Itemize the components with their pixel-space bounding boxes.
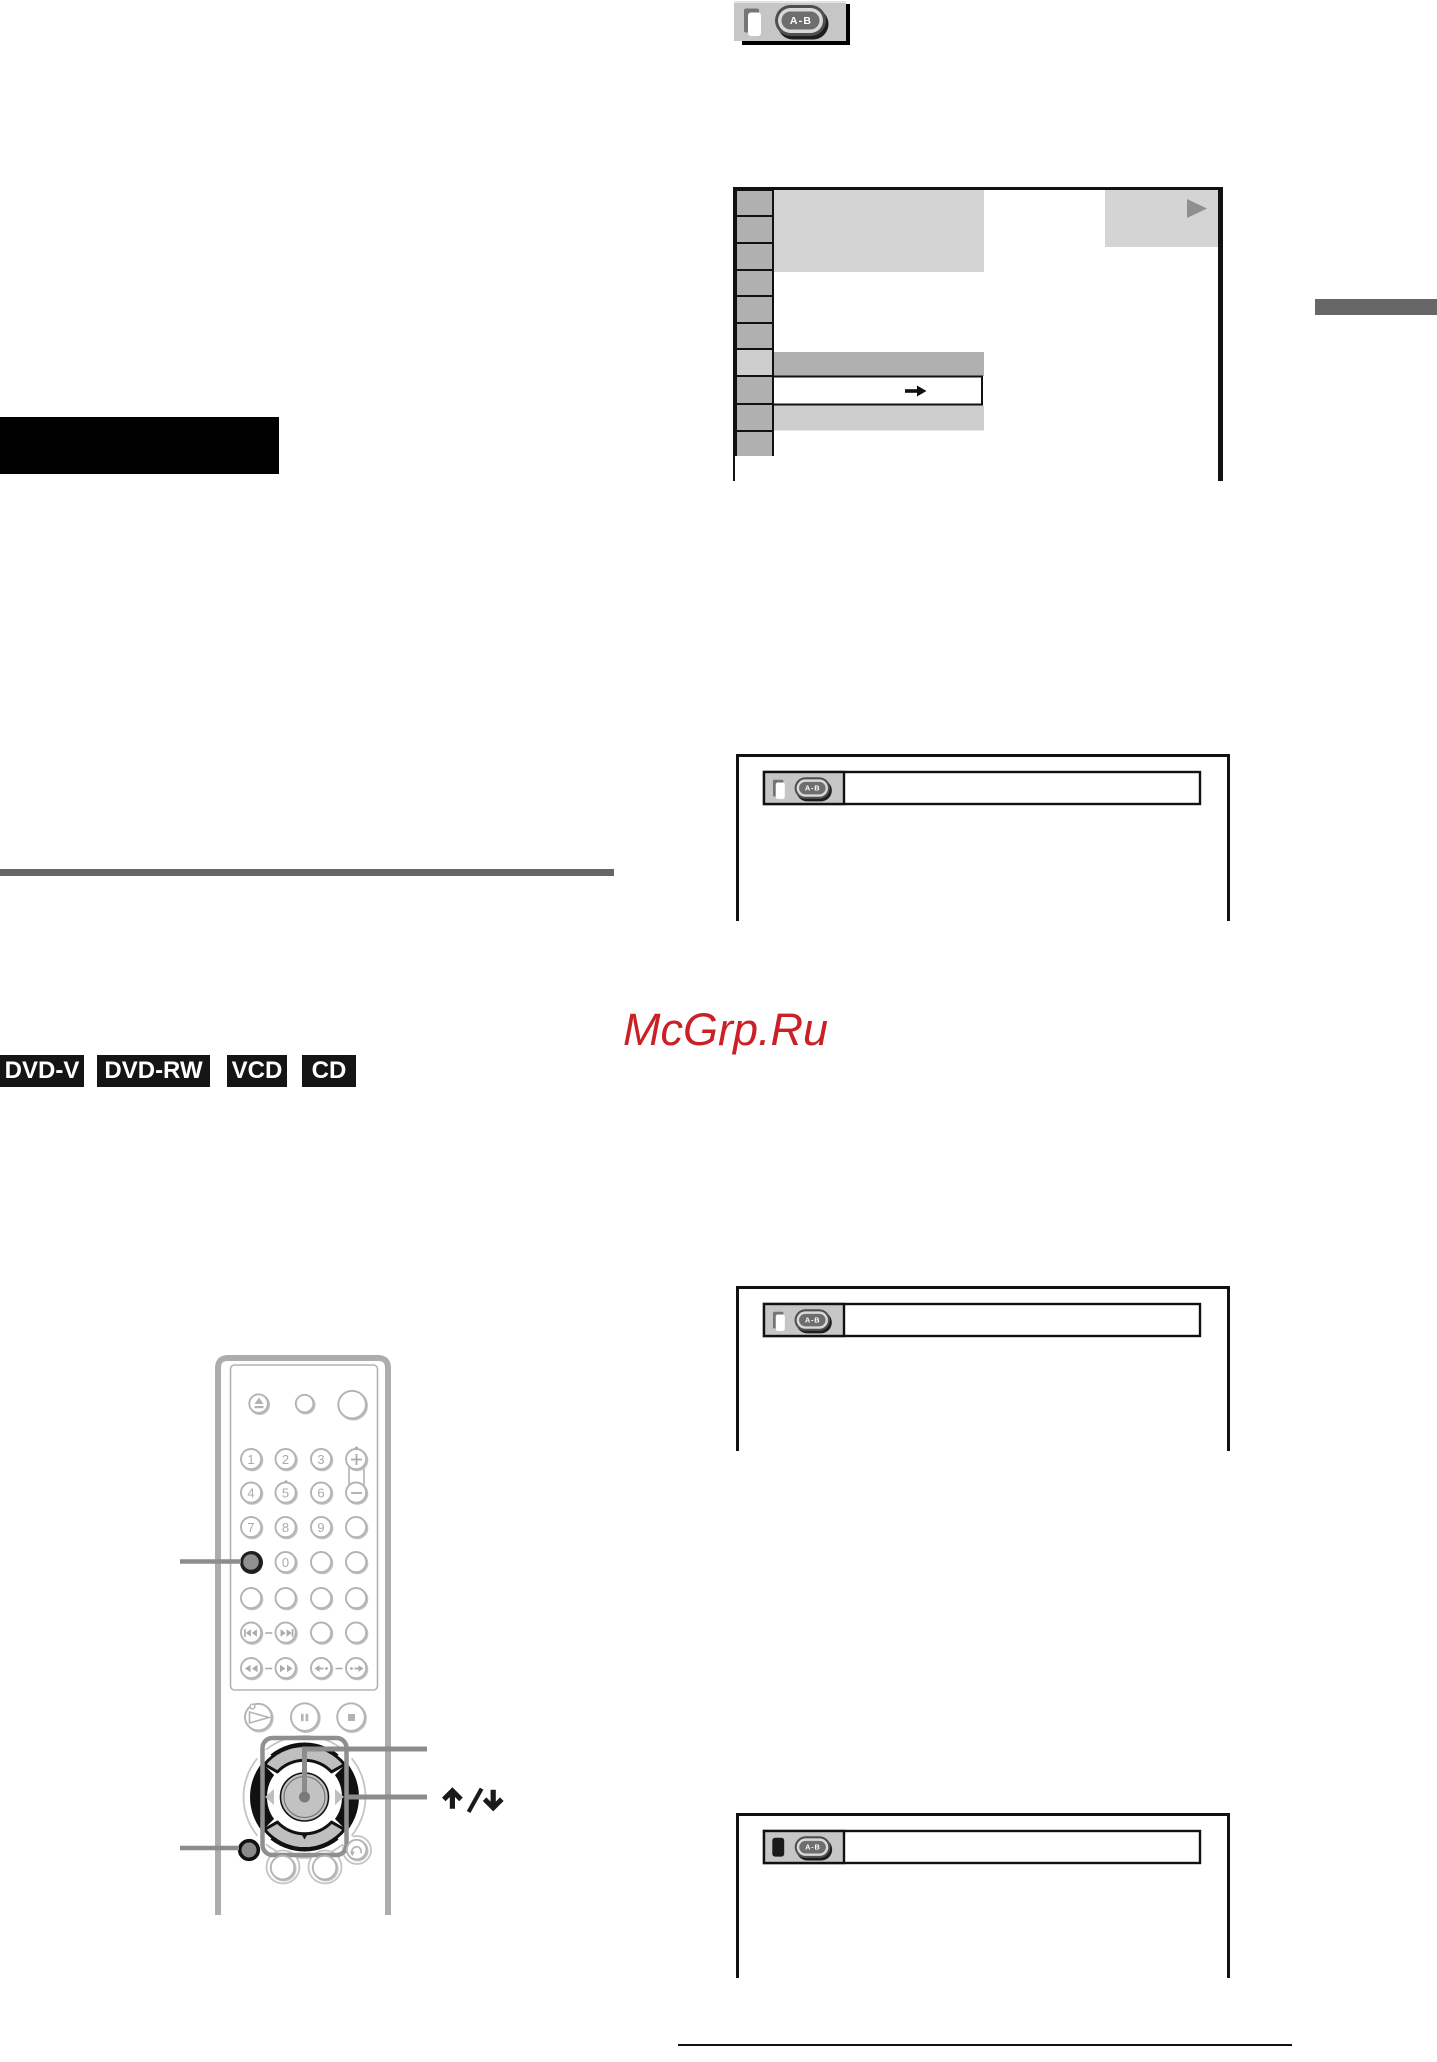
svg-text:0: 0 — [282, 1555, 289, 1570]
svg-text:7: 7 — [247, 1520, 254, 1535]
svg-text:4: 4 — [247, 1486, 254, 1501]
svg-text:8: 8 — [282, 1520, 289, 1535]
svg-text:6: 6 — [317, 1486, 324, 1501]
svg-text:5: 5 — [282, 1486, 289, 1501]
svg-text:2: 2 — [282, 1452, 289, 1467]
svg-text:9: 9 — [317, 1520, 324, 1535]
svg-text:3: 3 — [317, 1452, 324, 1467]
svg-text:A-B: A-B — [805, 1843, 821, 1852]
svg-text:1: 1 — [247, 1452, 254, 1467]
